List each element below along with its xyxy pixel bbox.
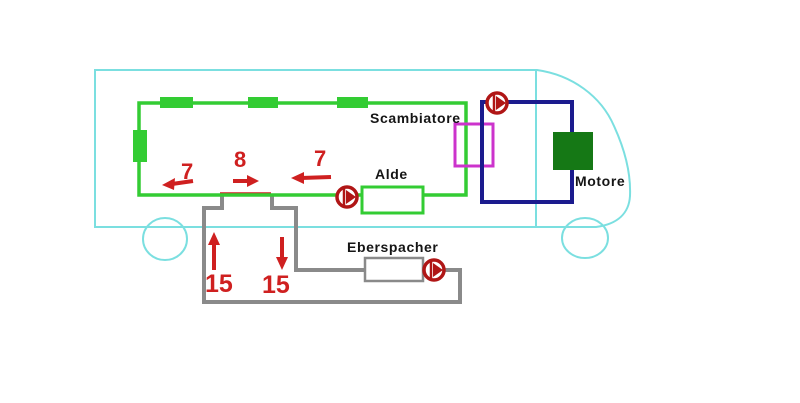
flow-arrow-center-8 (233, 175, 259, 187)
eberspacher-label: Eberspacher (347, 239, 438, 255)
flow-number-left-7: 7 (181, 159, 193, 184)
scambiatore-label: Scambiatore (370, 110, 461, 126)
alde-boiler-box (362, 187, 423, 213)
engine-block (553, 132, 593, 170)
roof-radiator-3 (337, 97, 368, 108)
alde-pump-icon (337, 187, 357, 207)
front-wheel (562, 218, 608, 258)
flow-number-right-7: 7 (314, 146, 326, 171)
heating-system-diagram: 7 8 7 15 15 Scambiatore Alde Motore Eber… (0, 0, 800, 403)
flow-arrow-up-15 (208, 232, 220, 270)
alde-label: Alde (375, 166, 408, 182)
flow-arrow-down-15 (276, 237, 288, 270)
side-radiator (133, 130, 147, 162)
flow-arrows (162, 172, 331, 270)
roof-radiator-2 (248, 97, 278, 108)
flow-number-up-15: 15 (205, 270, 233, 298)
engine-pump-icon (487, 93, 507, 113)
rear-wheel (143, 218, 187, 260)
eberspacher-heater-box (365, 258, 423, 281)
heat-exchanger-box (455, 124, 493, 166)
roof-radiator-1 (160, 97, 193, 108)
eberspacher-pump-icon (424, 260, 444, 280)
flow-arrow-right-7 (291, 172, 331, 184)
flow-number-down-15: 15 (262, 271, 290, 299)
paint-canvas: 7 8 7 15 15 Scambiatore Alde Motore Eber… (0, 0, 800, 403)
motore-label: Motore (575, 173, 625, 189)
flow-number-center-8: 8 (234, 147, 246, 172)
